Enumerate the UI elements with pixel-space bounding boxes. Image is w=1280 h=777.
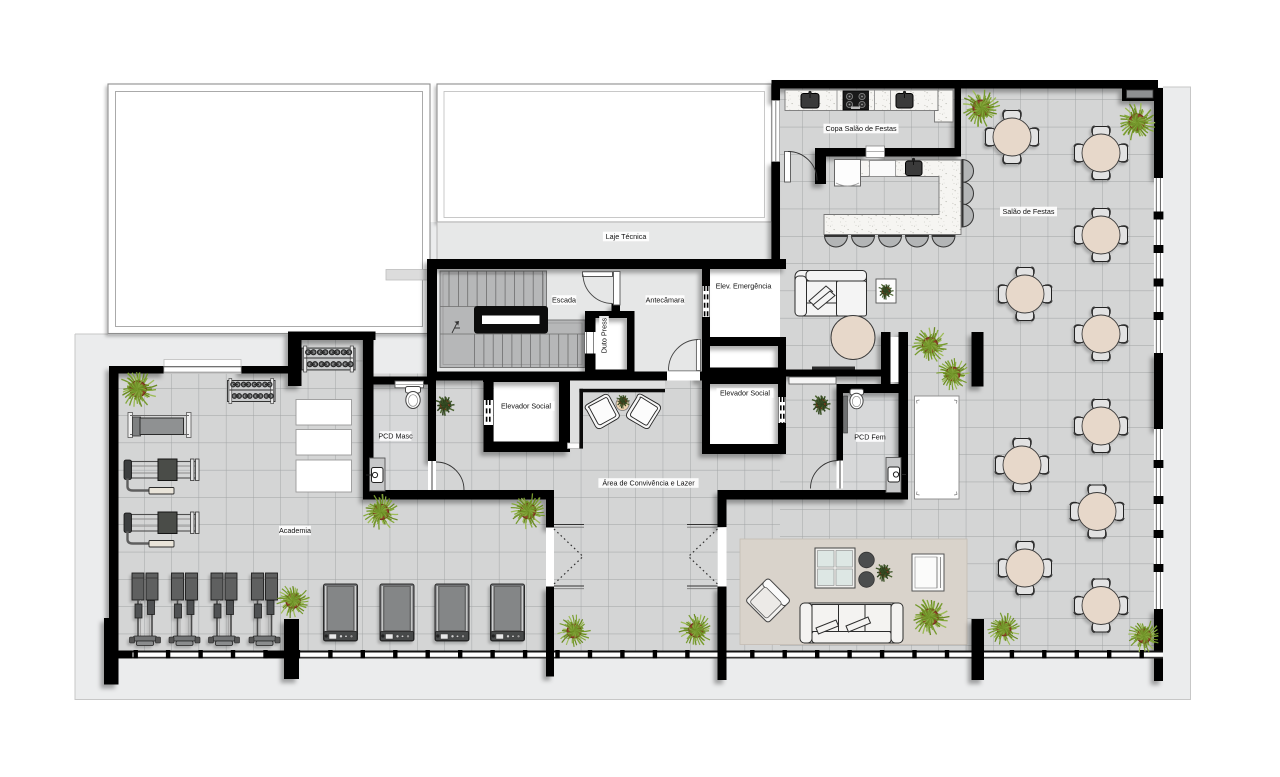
svg-text:Laje Técnica: Laje Técnica xyxy=(606,232,647,241)
svg-text:Elev. Emergência: Elev. Emergência xyxy=(716,282,772,291)
svg-text:Escada: Escada xyxy=(552,296,576,305)
svg-text:PCD Fem: PCD Fem xyxy=(854,433,886,442)
svg-text:Salão de Festas: Salão de Festas xyxy=(1003,207,1055,216)
svg-text:Elevador Social: Elevador Social xyxy=(720,389,770,398)
svg-text:PCD Masc: PCD Masc xyxy=(378,432,413,441)
svg-text:Área de Convivência e Lazer: Área de Convivência e Lazer xyxy=(602,479,695,488)
svg-text:Duto Press: Duto Press xyxy=(600,317,609,353)
svg-text:Elevador Social: Elevador Social xyxy=(501,402,551,411)
svg-text:Antecâmara: Antecâmara xyxy=(646,296,685,305)
svg-text:Copa Salão de Festas: Copa Salão de Festas xyxy=(825,124,897,133)
svg-text:Academia: Academia xyxy=(279,526,311,535)
